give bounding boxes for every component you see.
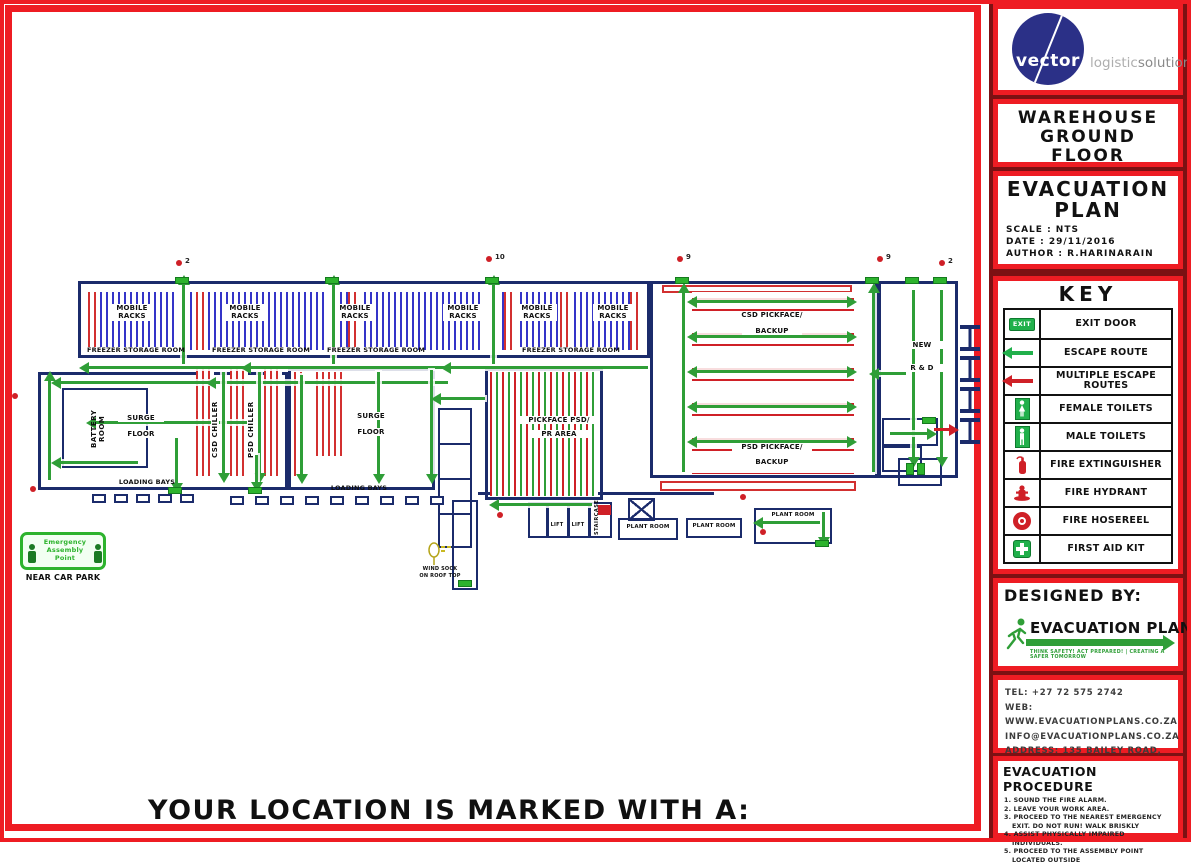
- room-label: BACKUP: [742, 458, 802, 466]
- escape-route: [878, 372, 906, 375]
- room-label: NEW: [900, 341, 944, 349]
- red-rack: [504, 292, 516, 350]
- fire-extinguisher-icon: [1005, 452, 1041, 478]
- escape-route: [222, 372, 225, 474]
- fire-hydrant-marker: [176, 260, 182, 266]
- room-label: FREEZER STORAGE ROOM: [520, 347, 612, 355]
- escape-route: [498, 503, 592, 506]
- room-label: PSD CHILLER: [247, 392, 255, 468]
- red-rack: [560, 292, 572, 350]
- loading-dock-door: [92, 494, 106, 503]
- fire-hydrant-marker: [486, 256, 492, 262]
- exit-door: [458, 580, 472, 587]
- room-label: FLOOR: [118, 430, 164, 438]
- lift-divider: [567, 502, 570, 538]
- room-label: LIFT: [569, 522, 587, 528]
- exit-door: [815, 540, 829, 547]
- procedure-title: EVACUATION PROCEDURE: [998, 761, 1178, 797]
- fire-hydrant-marker: [939, 260, 945, 266]
- designed-by-heading: DESIGNED BY:: [998, 583, 1178, 607]
- evacuation-plans-logo: EVACUATION PLANS THINK SAFETY! ACT PREPA…: [1002, 609, 1174, 667]
- loading-dock-door: [230, 496, 244, 505]
- procedure-step: 3. PROCEED TO THE NEAREST EMERGENCY EXIT…: [1004, 814, 1174, 831]
- room-label: FREEZER STORAGE ROOM: [210, 347, 302, 355]
- exit-door: [922, 417, 936, 424]
- loading-dock-door: [305, 496, 319, 505]
- escape-route: [60, 461, 138, 464]
- exit-number: 9: [886, 253, 891, 261]
- key-label: ESCAPE ROUTE: [1041, 340, 1171, 366]
- escape-route: [696, 370, 848, 373]
- exit-door: [905, 277, 919, 284]
- key-row: FIRE HYDRANT: [1005, 478, 1171, 506]
- escape-route: [258, 372, 261, 474]
- title-line: GROUND: [998, 128, 1178, 147]
- female-toilet-marker: [917, 463, 925, 475]
- procedure-step: 1. SOUND THE FIRE ALARM.: [1004, 797, 1174, 806]
- contact-web: WEB: WWW.EVACUATIONPLANS.CO.ZA: [1005, 701, 1178, 730]
- room-label: R & D: [900, 364, 944, 372]
- room-label: PLANT ROOM: [688, 523, 740, 530]
- contact-panel: TEL: +27 72 575 2742 WEB: WWW.EVACUATION…: [993, 675, 1183, 753]
- escape-route-arrow-icon: [1005, 340, 1041, 366]
- room-label: LOADING BAYS: [116, 479, 178, 487]
- logo-slash: [1028, 13, 1065, 85]
- key-row: FIRST AID KIT: [1005, 534, 1171, 562]
- location-note: YOUR LOCATION IS MARKED WITH A:: [148, 795, 750, 826]
- room-label: LIFT: [548, 522, 566, 528]
- room-label: CSD PICKFACE/: [732, 311, 812, 319]
- male-toilets-icon: [1005, 424, 1041, 450]
- room-label: PLANT ROOM: [622, 524, 674, 531]
- escape-route: [88, 366, 250, 369]
- room-label: BACKUP: [742, 327, 802, 335]
- room-label: BATTERY ROOM: [90, 398, 106, 460]
- escape-route: [175, 438, 178, 484]
- exit-number: 2: [948, 257, 953, 265]
- fire-hydrant-marker: [877, 256, 883, 262]
- room-label: PLANT ROOM: [764, 512, 822, 519]
- red-rack: [196, 292, 208, 350]
- room-label: MOBILE RACKS: [593, 304, 633, 321]
- escape-route: [492, 284, 495, 364]
- key-label: MALE TOILETS: [1041, 424, 1171, 450]
- room-label: PR AREA: [530, 430, 588, 438]
- fire-hosereel-icon: [1005, 508, 1041, 534]
- loading-dock-door: [330, 496, 344, 505]
- key-label: FIRE EXTINGUISHER: [1041, 452, 1171, 478]
- red-rack: [348, 292, 360, 350]
- title-line: FLOOR: [998, 147, 1178, 166]
- room-label: MOBILE RACKS: [225, 304, 265, 321]
- room-label: SURGE: [348, 412, 394, 420]
- exit-door-icon: EXIT: [1005, 310, 1041, 338]
- dock-beam: [960, 387, 980, 413]
- key-label: FIRE HYDRANT: [1041, 480, 1171, 506]
- procedure-step: 2. LEAVE YOUR WORK AREA.: [1004, 806, 1174, 815]
- logo-arrow: [1026, 639, 1164, 646]
- exit-door: [248, 487, 262, 494]
- person-icon: [94, 544, 102, 563]
- designed-by-panel: DESIGNED BY: EVACUATION PLANS THINK SAFE…: [993, 578, 1183, 671]
- exit-number: 2: [185, 257, 190, 265]
- rack-band-bottom: [660, 481, 856, 491]
- escape-route: [696, 300, 848, 303]
- plan-date: DATE : 29/11/2016: [998, 236, 1178, 248]
- plan-scale: SCALE : NTS: [998, 221, 1178, 236]
- wind-sock-label: WIND SOCK: [410, 566, 470, 572]
- loading-dock-door: [158, 494, 172, 503]
- multiple-escape-routes-arrow-icon: [1005, 368, 1041, 394]
- exit-door: [168, 487, 182, 494]
- key-row: EXIT EXIT DOOR: [1005, 310, 1171, 338]
- loading-dock-door: [405, 496, 419, 505]
- escape-route: [440, 397, 485, 400]
- plan-title-panel: EVACUATION PLAN SCALE : NTS DATE : 29/11…: [993, 171, 1183, 269]
- escape-route: [300, 375, 303, 475]
- procedure-step: 4. ASSIST PHYSICALLY IMPAIRED INDIVIDUAL…: [1004, 831, 1174, 848]
- title-line: WAREHOUSE: [998, 104, 1178, 128]
- assembly-location-label: NEAR CAR PARK: [20, 573, 106, 583]
- dock-beam: [960, 356, 980, 382]
- stair-divider: [588, 502, 591, 538]
- wind-sock-label: ON ROOF TOP: [410, 573, 470, 579]
- brand-panel: vector logisticsolutions: [993, 4, 1183, 95]
- escape-route: [250, 366, 450, 369]
- key-label: FIRE HOSEREEL: [1041, 508, 1171, 534]
- key-row: MALE TOILETS: [1005, 422, 1171, 450]
- logo-tagline: logisticsolutions: [1090, 55, 1191, 71]
- female-toilets-icon: [1005, 396, 1041, 422]
- exit-number: 10: [495, 253, 505, 261]
- red-rack: [630, 292, 640, 350]
- loading-dock-door: [280, 496, 294, 505]
- plan-author: AUTHOR : R.HARINARAIN: [998, 248, 1178, 260]
- escape-route: [822, 512, 825, 538]
- key-label: MULTIPLE ESCAPE ROUTES: [1041, 368, 1171, 394]
- escape-route: [430, 370, 433, 475]
- chiller-rack: [264, 368, 282, 476]
- escape-route: [377, 372, 380, 475]
- key-legend: EXIT EXIT DOOR ESCAPE ROUTE MULTIPLE ESC…: [1003, 308, 1173, 564]
- fire-hosereel-marker: [740, 494, 746, 500]
- procedure-steps: 1. SOUND THE FIRE ALARM. 2. LEAVE YOUR W…: [998, 797, 1178, 865]
- loading-dock-door: [180, 494, 194, 503]
- loading-dock-door: [355, 496, 369, 505]
- fire-hosereel-marker: [12, 393, 18, 399]
- procedure-panel: EVACUATION PROCEDURE 1. SOUND THE FIRE A…: [993, 756, 1183, 838]
- room-label: SURGE: [118, 414, 164, 422]
- title-panel: WAREHOUSE GROUND FLOOR: [993, 99, 1183, 167]
- assembly-point-sign: Emergency Assembly Point: [20, 532, 106, 570]
- loading-dock-door: [136, 494, 150, 503]
- room-label: PICKFACE PSD/: [520, 416, 598, 424]
- room-label: MOBILE RACKS: [335, 304, 375, 321]
- fire-hosereel-marker: [497, 512, 503, 518]
- key-row: FEMALE TOILETS: [1005, 394, 1171, 422]
- contact-tel: TEL: +27 72 575 2742: [1005, 686, 1178, 701]
- key-panel: KEY EXIT EXIT DOOR ESCAPE ROUTE MULTIPLE…: [993, 276, 1183, 574]
- escape-route: [762, 521, 820, 524]
- escape-route: [60, 381, 215, 384]
- wind-sock-icon: [426, 542, 456, 566]
- room-label: FREEZER STORAGE ROOM: [85, 347, 177, 355]
- fire-hosereel-marker: [760, 529, 766, 535]
- mobile-racking: [88, 292, 640, 350]
- escape-route: [696, 405, 848, 408]
- room-label: MOBILE RACKS: [517, 304, 557, 321]
- escape-route: [940, 290, 943, 458]
- dock-beam: [960, 418, 980, 444]
- logo-tagline: THINK SAFETY! ACT PREPARED! | CREATING A…: [1030, 650, 1174, 660]
- key-row: ESCAPE ROUTE: [1005, 338, 1171, 366]
- utility-divider: [438, 478, 472, 480]
- exit-door: [933, 277, 947, 284]
- escape-route: [890, 432, 928, 435]
- contact-email: INFO@EVACUATIONPLANS.CO.ZA: [1005, 730, 1178, 745]
- first-aid-kit-icon: [1005, 536, 1041, 562]
- fire-hydrant-icon: [1005, 480, 1041, 506]
- logo-tagline-dark: solutions: [1138, 55, 1191, 71]
- room-label: MOBILE RACKS: [443, 304, 483, 321]
- exit-door: [175, 277, 189, 284]
- room-label: MOBILE RACKS: [112, 304, 152, 321]
- key-row: FIRE EXTINGUISHER: [1005, 450, 1171, 478]
- dock-beam: [960, 325, 980, 351]
- multiple-escape-route-arrow: [934, 428, 950, 431]
- fire-hydrant-marker: [677, 256, 683, 262]
- room-label: PSD PICKFACE/: [732, 443, 812, 451]
- vector-logo: vector: [1012, 13, 1084, 85]
- assembly-point-label: Emergency Assembly Point: [40, 539, 90, 562]
- exit-door: [485, 277, 499, 284]
- room-label: STAIRCASE: [594, 505, 600, 535]
- utility-divider: [438, 443, 472, 445]
- red-rack: [88, 292, 100, 350]
- surge-rack: [316, 372, 346, 456]
- room-label: FREEZER STORAGE ROOM: [325, 347, 417, 355]
- escape-route: [682, 292, 685, 472]
- escape-route: [872, 292, 875, 472]
- escape-route: [255, 455, 258, 483]
- sidebar: vector logisticsolutions WAREHOUSE GROUN…: [989, 0, 1191, 842]
- logo-tagline-light: logistic: [1090, 55, 1138, 71]
- key-row: FIRE HOSEREEL: [1005, 506, 1171, 534]
- male-toilet-marker: [906, 463, 914, 475]
- procedure-step: 5. PROCEED TO THE ASSEMBLY POINT LOCATED…: [1004, 848, 1174, 865]
- loading-dock-door: [255, 496, 269, 505]
- exit-door: [325, 277, 339, 284]
- key-label: FEMALE TOILETS: [1041, 396, 1171, 422]
- exit-number: 9: [686, 253, 691, 261]
- key-label: FIRST AID KIT: [1041, 536, 1171, 562]
- key-label: EXIT DOOR: [1041, 310, 1171, 338]
- fire-hosereel-marker: [30, 486, 36, 492]
- room-label: CSD CHILLER: [211, 392, 219, 468]
- escape-route: [696, 335, 848, 338]
- key-row: MULTIPLE ESCAPE ROUTES: [1005, 366, 1171, 394]
- plan-title: EVACUATION: [998, 176, 1178, 200]
- room-label: FLOOR: [348, 428, 394, 436]
- escape-route: [450, 366, 648, 369]
- loading-dock-door: [114, 494, 128, 503]
- escape-route: [215, 381, 448, 384]
- loading-dock-door: [380, 496, 394, 505]
- room-label: LOADING BAYS: [328, 485, 390, 493]
- key-title: KEY: [998, 281, 1178, 308]
- logo-text: vector: [1012, 51, 1084, 71]
- person-icon: [28, 544, 36, 563]
- exit-door: [865, 277, 879, 284]
- lift-divider: [546, 502, 549, 538]
- plan-title: PLAN: [998, 200, 1178, 221]
- exit-door: [675, 277, 689, 284]
- loading-dock-door: [430, 496, 444, 505]
